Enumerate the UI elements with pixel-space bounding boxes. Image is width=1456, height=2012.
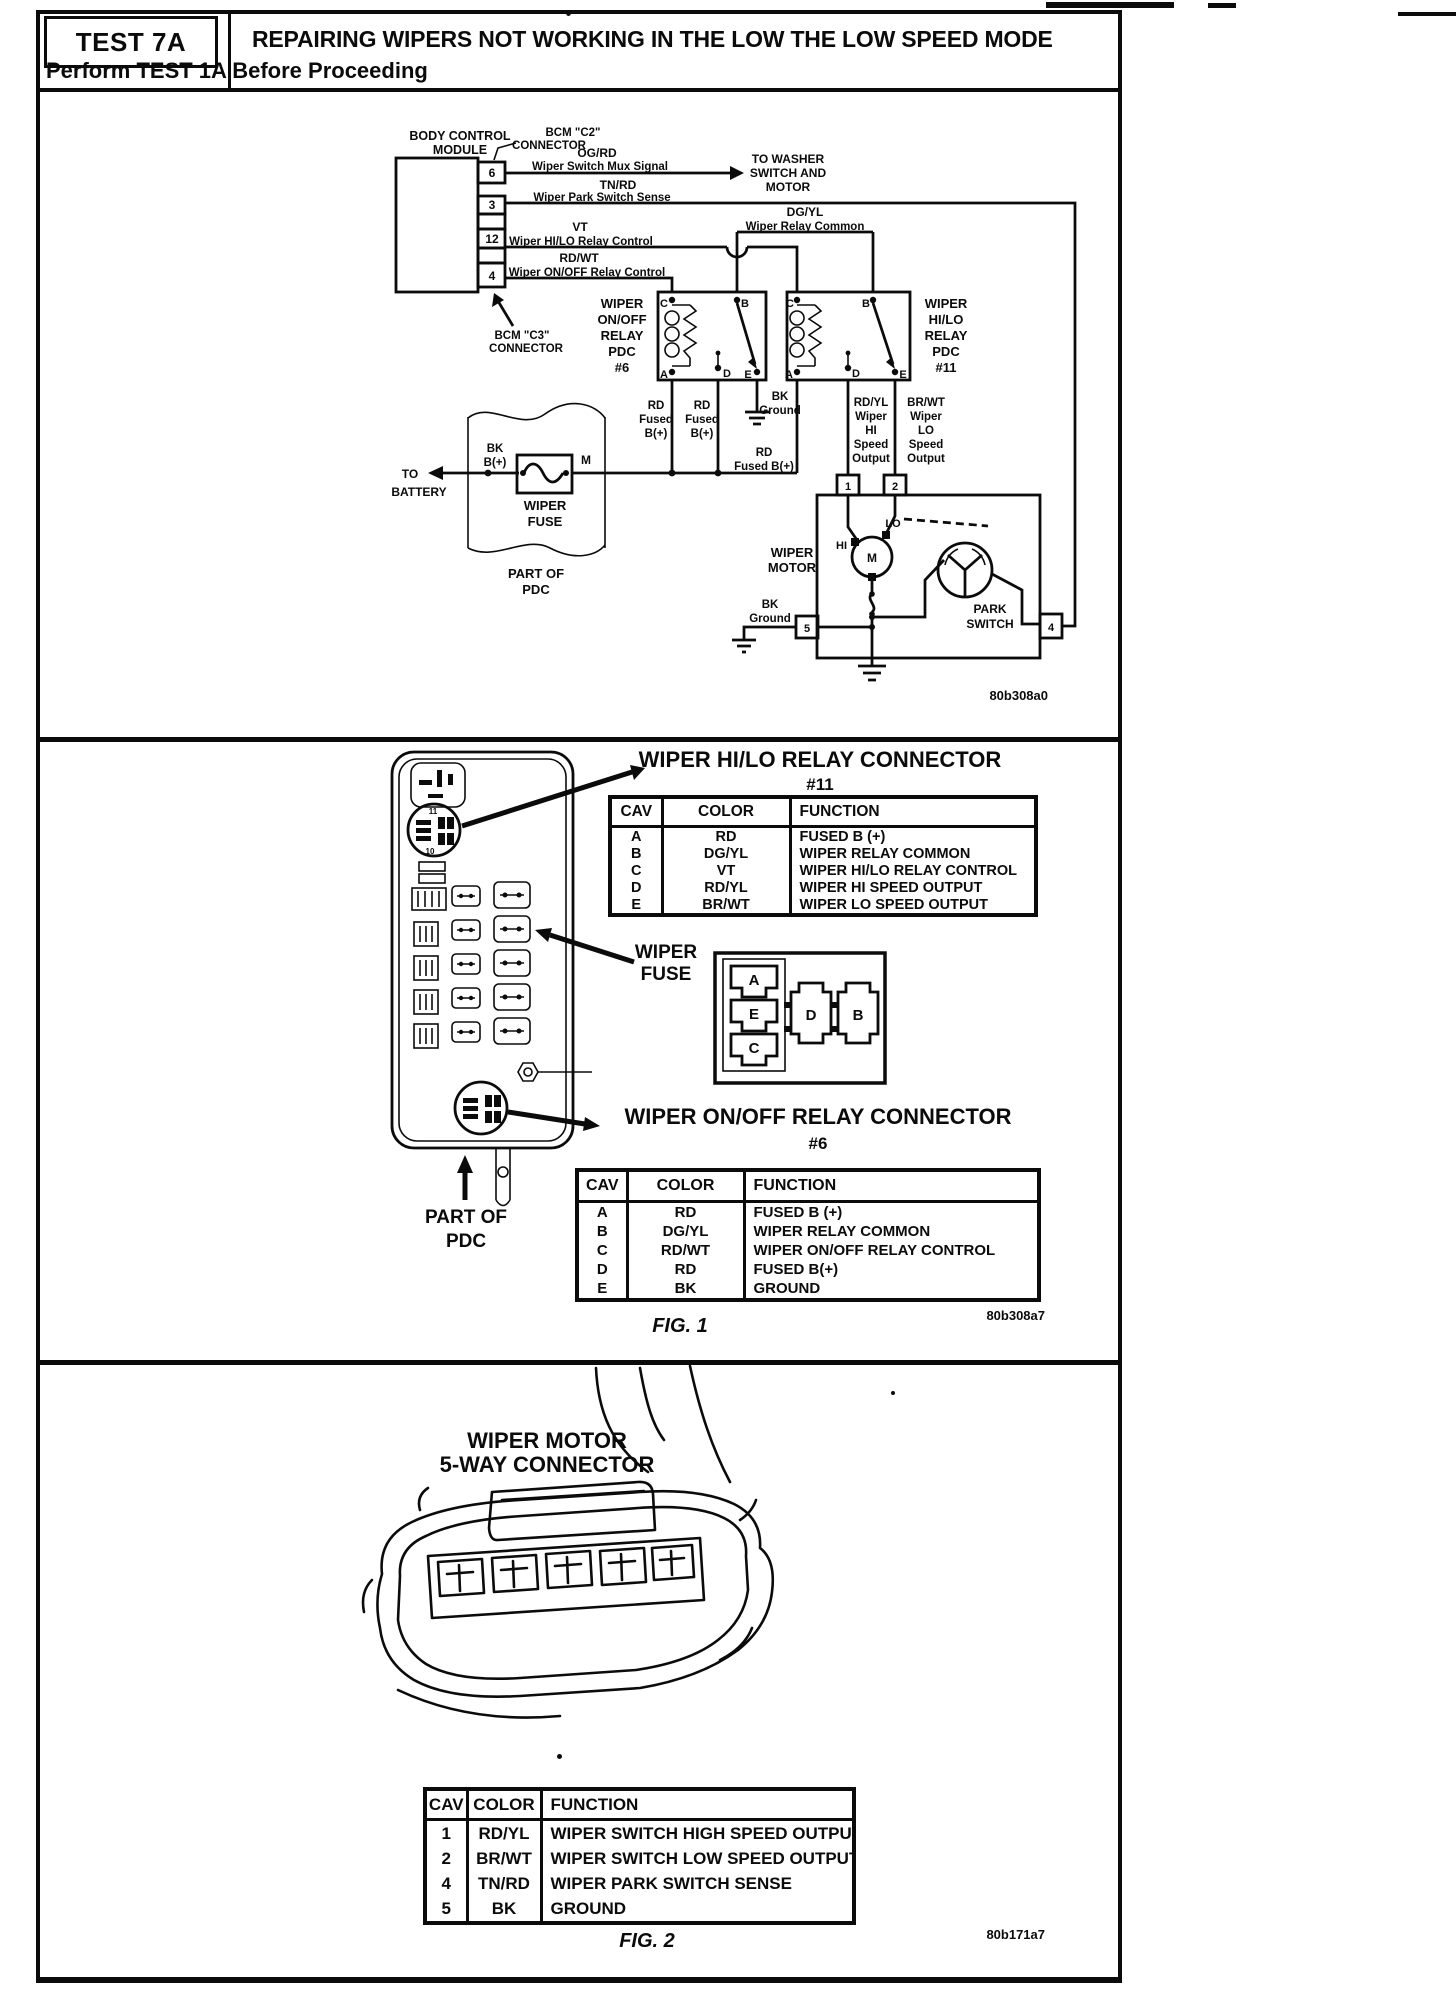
svg-text:B: B	[853, 1007, 864, 1024]
relay6-pinout-table: CAV COLOR FUNCTION ARDFUSED B (+) BDG/YL…	[575, 1168, 1041, 1302]
bcm-c3-callout: BCM "C3" CONNECTOR	[489, 293, 564, 355]
border-right	[1118, 10, 1122, 1983]
svg-text:Output: Output	[907, 453, 945, 465]
svg-text:B: B	[741, 298, 749, 310]
svg-text:4: 4	[489, 269, 496, 283]
wiper-fuse-symbol: M WIPER FUSE	[517, 453, 591, 529]
svg-text:BK: BK	[762, 599, 779, 611]
col-header-function: FUNCTION	[744, 1170, 1039, 1202]
svg-text:VT: VT	[572, 220, 588, 234]
svg-text:#6: #6	[615, 360, 629, 375]
svg-text:D: D	[723, 368, 731, 380]
col-header-cav: CAV	[577, 1170, 627, 1202]
table-row: DRDFUSED B(+)	[577, 1260, 1039, 1279]
fig1-caption: FIG. 1	[628, 1315, 732, 1338]
svg-text:C: C	[660, 298, 668, 310]
svg-text:Wiper ON/OFF Relay Control: Wiper ON/OFF Relay Control	[509, 267, 665, 279]
svg-text:TO WASHER: TO WASHER	[752, 152, 825, 166]
svg-text:Speed: Speed	[854, 439, 889, 451]
fig2-caption: FIG. 2	[592, 1930, 702, 1953]
svg-text:Fused: Fused	[685, 414, 719, 426]
svg-text:D: D	[852, 368, 860, 380]
border-top	[36, 10, 1122, 14]
svg-text:HI: HI	[836, 540, 847, 552]
svg-text:OG/RD: OG/RD	[577, 146, 617, 160]
svg-text:#11: #11	[936, 360, 957, 375]
scan-artifact	[1398, 12, 1456, 16]
svg-text:LO: LO	[918, 425, 934, 437]
svg-text:PDC: PDC	[932, 344, 960, 359]
wire-mux-signal: OG/RD Wiper Switch Mux Signal TO WASHER …	[505, 146, 826, 194]
part-of-pdc-line1: PART OF	[412, 1206, 520, 1230]
svg-text:PDC: PDC	[522, 582, 550, 597]
border-bottom	[36, 1977, 1122, 1983]
wiper-motor-assembly: 1 2 5 4 WIPER MOTOR M HI LO PARK SWITCH	[732, 475, 1062, 680]
relay6-connector-number: #6	[588, 1134, 1048, 1154]
relay-cavity-connector: A E C D B	[715, 953, 885, 1083]
svg-text:6: 6	[489, 166, 496, 180]
col-header-function: FUNCTION	[541, 1789, 854, 1820]
svg-text:E: E	[899, 369, 906, 381]
svg-text:WIPER: WIPER	[524, 498, 567, 513]
svg-text:C: C	[786, 298, 794, 310]
svg-text:SWITCH AND: SWITCH AND	[750, 166, 827, 180]
svg-text:Wiper: Wiper	[855, 411, 887, 423]
pdc-panel-drawing: 11 10	[392, 752, 592, 1206]
table-row: 1RD/YLWIPER SWITCH HIGH SPEED OUTPUT	[425, 1820, 854, 1847]
svg-text:Ground: Ground	[759, 405, 801, 417]
col-header-function: FUNCTION	[790, 797, 1036, 827]
svg-text:WIPER: WIPER	[771, 545, 814, 560]
svg-text:CONNECTOR: CONNECTOR	[512, 140, 587, 152]
table-row: CVTWIPER HI/LO RELAY CONTROL	[610, 862, 1036, 879]
table-row: BDG/YLWIPER RELAY COMMON	[577, 1222, 1039, 1241]
svg-text:Output: Output	[852, 453, 890, 465]
wire-onoff-control: RD/WT Wiper ON/OFF Relay Control	[505, 251, 672, 292]
svg-text:RD: RD	[756, 447, 773, 459]
svg-text:M: M	[867, 551, 877, 565]
svg-text:WIPER: WIPER	[601, 296, 644, 311]
svg-text:BCM "C3": BCM "C3"	[495, 330, 550, 342]
motor-connector-pinout-table: CAV COLOR FUNCTION 1RD/YLWIPER SWITCH HI…	[423, 1787, 856, 1925]
part-of-pdc-line2: PDC	[412, 1230, 520, 1254]
svg-text:MOTOR: MOTOR	[768, 560, 817, 575]
svg-text:BODY CONTROL: BODY CONTROL	[409, 129, 511, 143]
wiper-fuse-callout-line2: FUSE	[622, 964, 710, 986]
table-row: BDG/YLWIPER RELAY COMMON	[610, 845, 1036, 862]
svg-text:D: D	[806, 1007, 817, 1024]
table-row: EBR/WTWIPER LO SPEED OUTPUT	[610, 896, 1036, 915]
svg-text:WIPER: WIPER	[925, 296, 968, 311]
table-row: ARDFUSED B (+)	[610, 827, 1036, 846]
svg-text:E: E	[749, 1006, 759, 1023]
relay11-pinout-table: CAV COLOR FUNCTION ARDFUSED B (+) BDG/YL…	[608, 795, 1038, 917]
svg-text:RD: RD	[648, 400, 665, 412]
svg-text:BK: BK	[772, 391, 789, 403]
battery-feed: TO BATTERY BK B(+)	[391, 380, 797, 499]
figure-code-2: 80b308a7	[925, 1308, 1045, 1323]
relay11-connector-number: #11	[600, 775, 1040, 795]
relay6-connector-title: WIPER ON/OFF RELAY CONNECTOR	[588, 1104, 1048, 1130]
svg-text:2: 2	[892, 481, 898, 493]
svg-text:TO: TO	[402, 467, 418, 481]
wiper-fuse-callout: WIPER FUSE	[622, 942, 710, 986]
svg-text:A: A	[660, 369, 668, 381]
svg-text:FUSE: FUSE	[528, 514, 563, 529]
svg-text:Ground: Ground	[749, 613, 791, 625]
col-header-cav: CAV	[425, 1789, 467, 1820]
svg-text:RELAY: RELAY	[925, 328, 968, 343]
svg-text:B(+): B(+)	[484, 457, 507, 469]
svg-text:MOTOR: MOTOR	[766, 180, 811, 194]
svg-text:4: 4	[1048, 622, 1055, 634]
figure-code-1: 80b308a0	[989, 688, 1048, 703]
svg-text:M: M	[581, 453, 591, 467]
wiring-schematic: BODY CONTROL MODULE 6 3 12 4 BCM "C2" CO…	[40, 92, 1118, 737]
wire-relay-common: DG/YL Wiper Relay Common	[737, 205, 873, 292]
svg-text:BCM "C2": BCM "C2"	[546, 127, 601, 139]
relay-onoff-6: C B A D E WIPER ON/OFF RELAY PDC #6	[597, 292, 766, 381]
col-header-color: COLOR	[467, 1789, 541, 1820]
relay11-outputs: RD/YL Wiper HI Speed Output BR/WT Wiper …	[848, 380, 945, 475]
svg-text:B(+): B(+)	[645, 428, 668, 440]
scan-artifact	[1208, 3, 1236, 8]
col-header-color: COLOR	[662, 797, 790, 827]
table-row: 2BR/WTWIPER SWITCH LOW SPEED OUTPUT	[425, 1846, 854, 1871]
table-row: ARDFUSED B (+)	[577, 1202, 1039, 1223]
svg-text:SWITCH: SWITCH	[966, 617, 1013, 631]
svg-text:11: 11	[429, 807, 438, 816]
svg-text:A: A	[749, 972, 760, 989]
scan-artifact	[566, 10, 571, 16]
table-row: 4TN/RDWIPER PARK SWITCH SENSE	[425, 1871, 854, 1896]
svg-text:5: 5	[804, 623, 810, 635]
svg-text:10: 10	[426, 847, 435, 856]
svg-text:TN/RD: TN/RD	[600, 178, 637, 192]
part-of-pdc-label: PART OF PDC	[412, 1206, 520, 1254]
svg-text:12: 12	[485, 232, 499, 246]
svg-text:Wiper: Wiper	[910, 411, 942, 423]
svg-text:BR/WT: BR/WT	[907, 397, 945, 409]
svg-text:HI/LO: HI/LO	[929, 312, 964, 327]
svg-text:MODULE: MODULE	[433, 143, 487, 157]
svg-text:RELAY: RELAY	[601, 328, 644, 343]
col-header-color: COLOR	[627, 1170, 744, 1202]
scan-artifact	[1046, 2, 1174, 8]
svg-text:HI: HI	[865, 425, 877, 437]
svg-text:B(+): B(+)	[691, 428, 714, 440]
relay11-connector-title: WIPER HI/LO RELAY CONNECTOR	[600, 747, 1040, 773]
svg-text:E: E	[744, 369, 751, 381]
svg-text:Speed: Speed	[909, 439, 944, 451]
svg-text:ON/OFF: ON/OFF	[597, 312, 646, 327]
bcm-module: BODY CONTROL MODULE 6 3 12 4	[396, 129, 511, 292]
svg-text:A: A	[785, 369, 793, 381]
table-row: 5BKGROUND	[425, 1896, 854, 1923]
svg-text:B: B	[862, 298, 870, 310]
svg-text:RD/WT: RD/WT	[559, 251, 599, 265]
svg-text:Wiper Switch Mux Signal: Wiper Switch Mux Signal	[532, 161, 668, 173]
relay6-feeds: RD Fused B(+) RD Fused B(+) BK Ground RD…	[639, 380, 801, 473]
svg-text:Wiper Relay Common: Wiper Relay Common	[746, 221, 865, 233]
svg-text:C: C	[749, 1040, 760, 1057]
table-row: EBKGROUND	[577, 1279, 1039, 1300]
svg-text:PDC: PDC	[608, 344, 636, 359]
table-row: CRD/WTWIPER ON/OFF RELAY CONTROL	[577, 1241, 1039, 1260]
svg-text:BATTERY: BATTERY	[391, 485, 446, 499]
page-title: REPAIRING WIPERS NOT WORKING IN THE LOW …	[252, 26, 1112, 53]
relay-hilo-11: C B A D E WIPER HI/LO RELAY PDC #11	[785, 292, 968, 381]
table-row: DRD/YLWIPER HI SPEED OUTPUT	[610, 879, 1036, 896]
manual-page: TEST 7A REPAIRING WIPERS NOT WORKING IN …	[0, 0, 1456, 2012]
svg-text:Wiper Park Switch Sense: Wiper Park Switch Sense	[533, 192, 670, 204]
svg-text:CONNECTOR: CONNECTOR	[489, 343, 564, 355]
svg-text:PARK: PARK	[973, 602, 1006, 616]
svg-text:RD: RD	[694, 400, 711, 412]
page-subtitle: Perform TEST 1A Before Proceeding	[46, 58, 428, 84]
col-header-cav: CAV	[610, 797, 662, 827]
svg-text:BK: BK	[487, 443, 504, 455]
svg-text:PART OF: PART OF	[508, 566, 564, 581]
wiper-fuse-callout-line1: WIPER	[622, 942, 710, 964]
svg-text:3: 3	[489, 198, 496, 212]
svg-text:Fused B(+): Fused B(+)	[734, 461, 794, 473]
figure-code-3: 80b171a7	[925, 1927, 1045, 1942]
svg-text:DG/YL: DG/YL	[787, 205, 824, 219]
svg-text:Wiper HI/LO Relay Control: Wiper HI/LO Relay Control	[509, 236, 653, 248]
svg-text:1: 1	[845, 481, 851, 493]
svg-text:Fused: Fused	[639, 414, 673, 426]
svg-text:RD/YL: RD/YL	[854, 397, 889, 409]
